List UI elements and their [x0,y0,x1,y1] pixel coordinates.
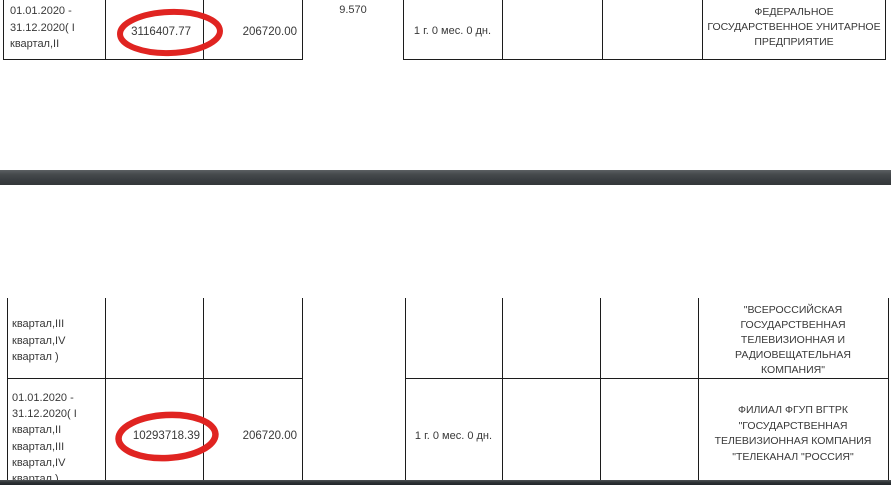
period-cell: 01.01.2020 - 31.12.2020( I квартал,II кв… [12,390,104,485]
table1-border-col7 [702,0,703,60]
table2-border-col1 [105,298,106,480]
supplier-name-cell: ФЕДЕРАЛЬНОЕ ГОСУДАРСТВЕННОЕ УНИТАРНОЕ ПР… [704,5,884,50]
table2-border-col4 [405,298,406,480]
pdf-page-view: 01.01.2020 - 31.12.2020( I квартал,II 31… [0,0,891,485]
table2-border-col6 [600,298,601,480]
supplier-name-cell: "ВСЕРОССИЙСКАЯ ГОСУДАРСТВЕННАЯ ТЕЛЕВИЗИО… [700,303,886,378]
table2-border-left [7,298,8,480]
period-cell: квартал,III квартал,IV квартал ) [12,316,102,366]
table2-row-divider-right [405,378,889,379]
supplier-name-cell: ФИЛИАЛ ФГУП ВГТРК "ГОСУДАРСТВЕННАЯ ТЕЛЕВ… [700,403,886,465]
guarantee-amount-cell: 206720.00 [203,430,297,443]
table1-border-bottom-left [3,59,303,60]
table1-border-bottom-right [403,59,886,60]
table2-border-col5 [502,298,503,480]
contract-price-cell: 10293718.39 [105,430,200,443]
page-separator-bottom [0,480,891,485]
duration-cell: 1 г. 0 мес. 0 дн. [403,25,502,38]
table2-row-divider-left [7,378,303,379]
table2-border-col3 [302,298,303,480]
duration-cell: 1 г. 0 мес. 0 дн. [405,430,502,443]
table2-border-col2 [203,298,204,480]
page-separator [0,170,891,185]
period-cell: 01.01.2020 - 31.12.2020( I квартал,II [10,3,102,53]
table1-border-col6 [602,0,603,60]
table1-border-right [885,0,886,60]
table2-border-right [888,298,889,480]
table1-border-left [3,0,4,60]
guarantee-amount-cell: 206720.00 [203,26,297,39]
table1-border-col5 [502,0,503,60]
rate-cell: 9.570 [303,4,403,17]
contract-price-cell: 3116407.77 [105,26,197,39]
table2-border-col7 [698,298,699,480]
